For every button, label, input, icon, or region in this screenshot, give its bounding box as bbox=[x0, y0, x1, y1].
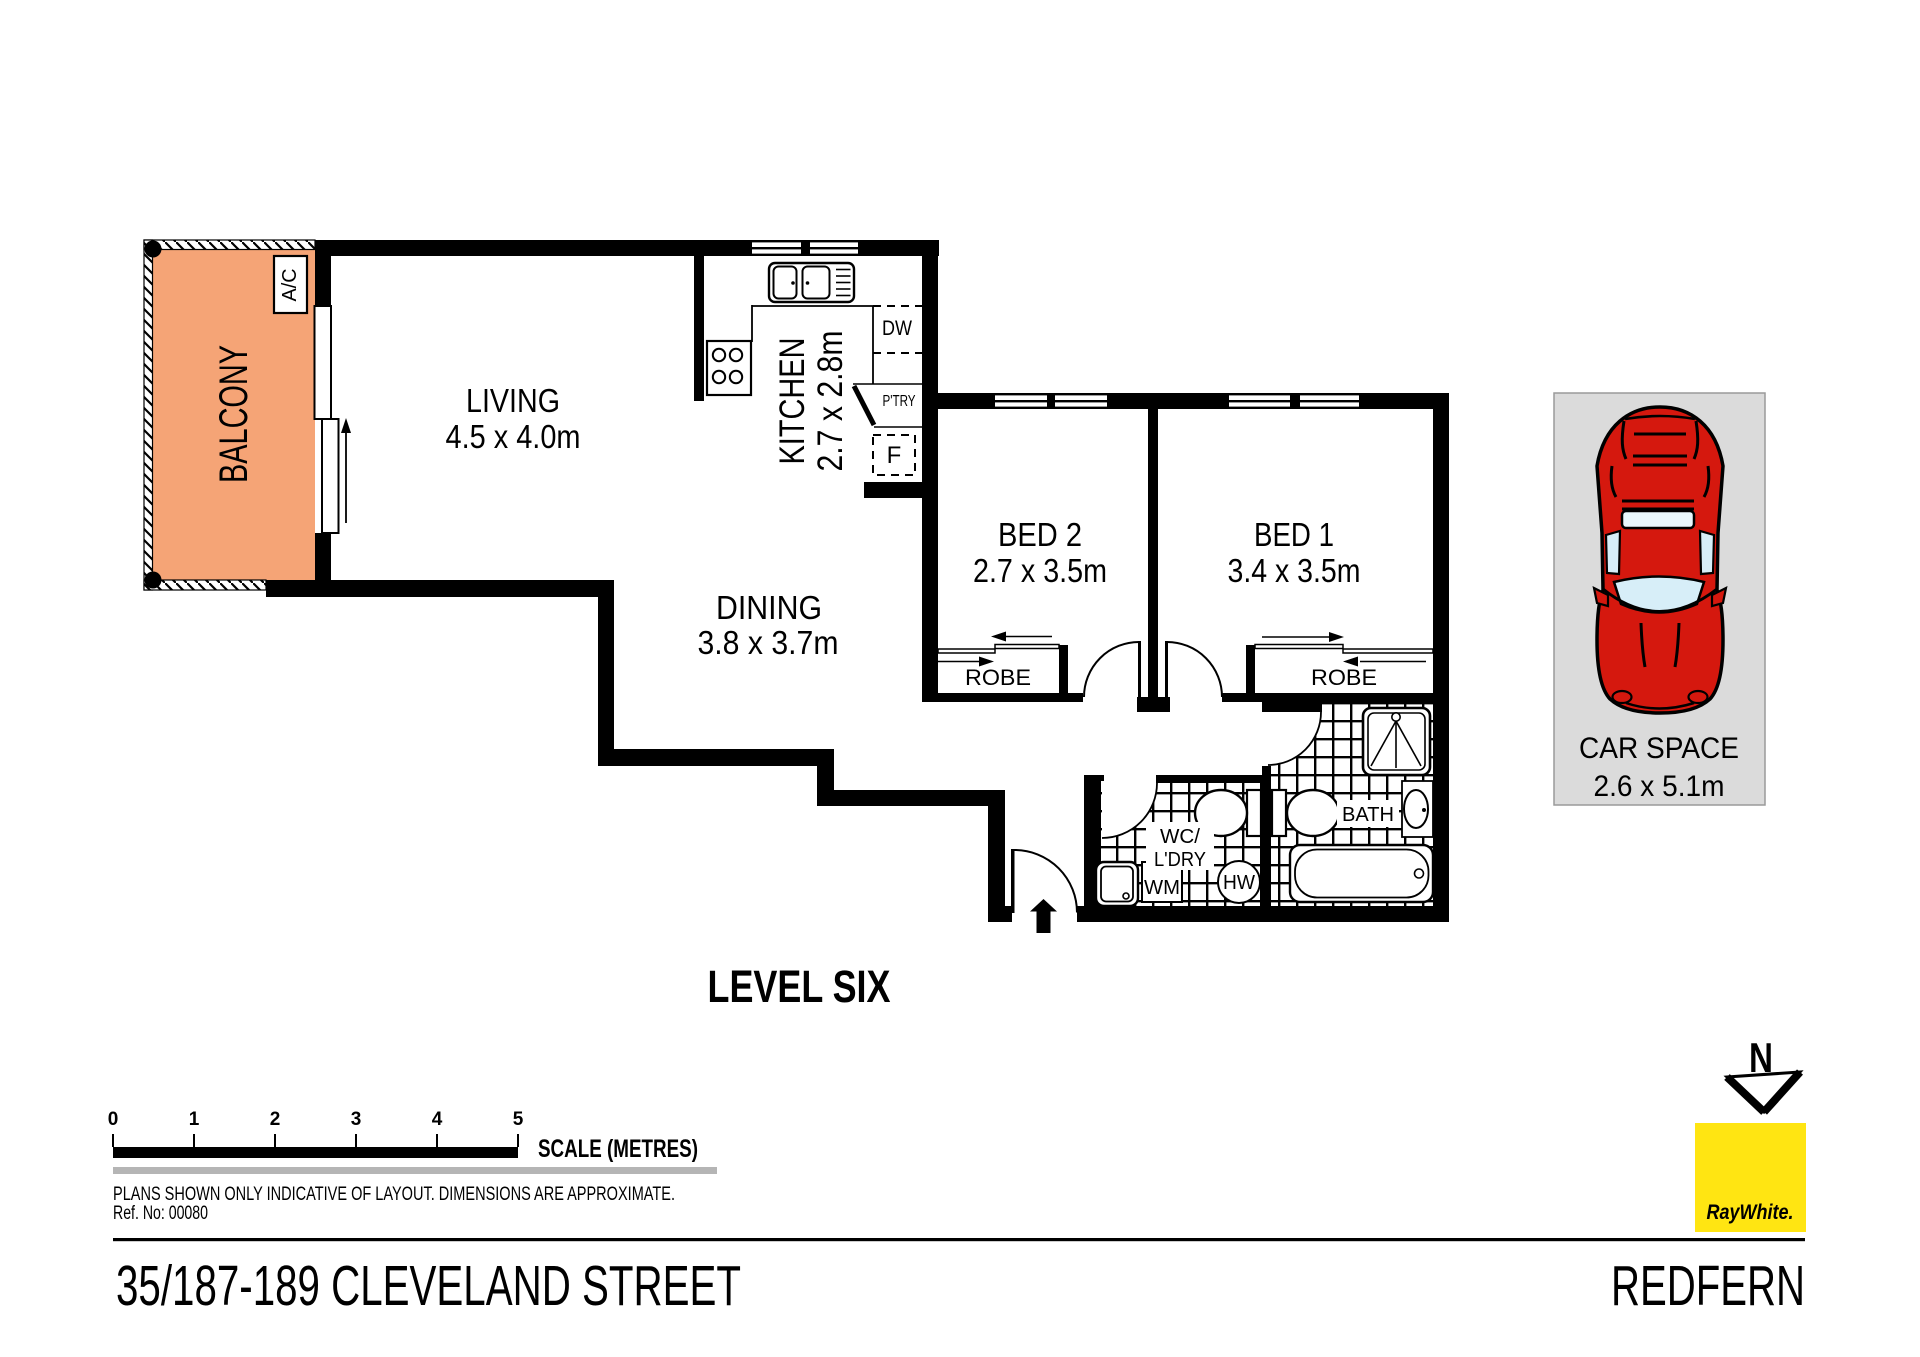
svg-text:BED 1: BED 1 bbox=[1254, 516, 1334, 553]
svg-text:CAR SPACE: CAR SPACE bbox=[1579, 732, 1739, 765]
svg-text:WC/: WC/ bbox=[1160, 826, 1200, 848]
svg-text:HW: HW bbox=[1223, 872, 1255, 894]
svg-text:2.6 x 5.1m: 2.6 x 5.1m bbox=[1594, 770, 1725, 803]
svg-text:KITCHEN: KITCHEN bbox=[773, 338, 812, 465]
svg-text:L'DRY: L'DRY bbox=[1154, 849, 1206, 871]
svg-text:PLANS SHOWN ONLY INDICATIVE OF: PLANS SHOWN ONLY INDICATIVE OF LAYOUT. D… bbox=[113, 1184, 675, 1205]
svg-text:4.5 x 4.0m: 4.5 x 4.0m bbox=[446, 418, 581, 455]
svg-text:F: F bbox=[887, 442, 902, 469]
svg-text:35/187-189 CLEVELAND STREET: 35/187-189 CLEVELAND STREET bbox=[116, 1254, 741, 1318]
svg-text:2.7 x 2.8m: 2.7 x 2.8m bbox=[811, 331, 850, 472]
svg-text:4: 4 bbox=[432, 1109, 443, 1130]
svg-text:3.8 x 3.7m: 3.8 x 3.7m bbox=[698, 624, 839, 661]
svg-text:ROBE: ROBE bbox=[965, 665, 1031, 690]
svg-text:BALCONY: BALCONY bbox=[212, 345, 256, 483]
svg-text:SCALE (METRES): SCALE (METRES) bbox=[538, 1135, 698, 1163]
svg-text:A/C: A/C bbox=[279, 269, 301, 302]
svg-text:REDFERN: REDFERN bbox=[1611, 1254, 1805, 1318]
svg-text:LIVING: LIVING bbox=[466, 382, 560, 419]
svg-text:Ref. No: 00080: Ref. No: 00080 bbox=[113, 1203, 208, 1224]
svg-text:2: 2 bbox=[270, 1109, 281, 1130]
svg-text:P'TRY: P'TRY bbox=[883, 393, 916, 410]
svg-text:1: 1 bbox=[189, 1109, 200, 1130]
svg-text:3.4 x 3.5m: 3.4 x 3.5m bbox=[1228, 552, 1361, 589]
svg-text:BED 2: BED 2 bbox=[998, 516, 1082, 553]
svg-text:BATH: BATH bbox=[1342, 804, 1394, 826]
svg-text:WM: WM bbox=[1144, 877, 1180, 899]
svg-text:DW: DW bbox=[882, 317, 912, 340]
svg-text:0: 0 bbox=[108, 1109, 119, 1130]
svg-text:DINING: DINING bbox=[716, 589, 822, 626]
svg-text:5: 5 bbox=[513, 1109, 524, 1130]
svg-text:LEVEL SIX: LEVEL SIX bbox=[708, 961, 891, 1012]
svg-text:3: 3 bbox=[351, 1109, 362, 1130]
svg-text:RayWhite.: RayWhite. bbox=[1707, 1201, 1794, 1224]
svg-text:2.7 x 3.5m: 2.7 x 3.5m bbox=[973, 552, 1107, 589]
svg-text:ROBE: ROBE bbox=[1311, 665, 1377, 690]
